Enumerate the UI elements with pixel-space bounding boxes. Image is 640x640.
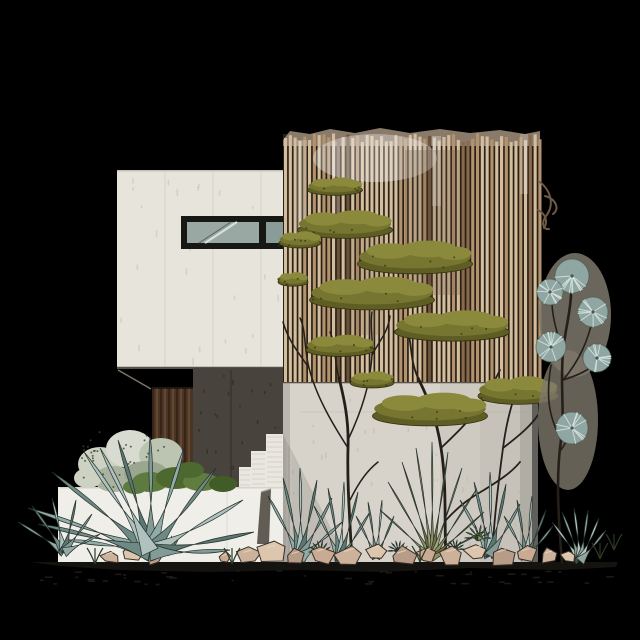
canopy-dot [459,410,461,412]
speck [349,398,351,401]
speck [508,573,516,575]
ribbon-window [181,216,287,249]
speck [435,453,437,455]
canopy-dot [314,347,316,349]
speck [436,479,438,481]
speck [312,425,314,428]
canopy-dot [366,380,368,382]
speck [186,269,188,276]
speck [252,390,254,393]
canopy-dot [320,298,322,300]
speck [462,487,464,493]
speck [75,577,78,579]
canopy-dot [284,281,286,283]
canopy-dot [363,384,365,386]
puffball [537,279,563,305]
speck [313,440,315,444]
speck [156,230,158,237]
speck [257,420,259,424]
slat [284,138,287,383]
speck [467,477,469,481]
speck [373,428,375,433]
speck [232,580,234,582]
canopy-dot [277,278,279,280]
speck [469,543,471,547]
window-mullion [259,222,266,243]
speck [75,571,83,573]
sage-dot [133,462,135,464]
speck [345,578,352,580]
sage-dot [96,450,98,452]
slat [500,136,503,383]
canopy-dot [372,255,374,257]
sage-dot [129,461,131,463]
upper-volume [117,170,283,369]
speck [123,574,126,576]
speck [415,571,417,573]
sage-dot [82,445,84,447]
canopy-dot [329,229,331,231]
speck [461,583,469,585]
canopy-dot [461,333,463,335]
speck [470,571,472,573]
canopy-bump [452,398,487,412]
canopy-dot [313,231,315,233]
speck [264,274,266,279]
puff-center [595,356,598,359]
canopy-dot [385,384,387,386]
speck [232,380,234,385]
canopy-dot [391,378,393,380]
canopy-dot [471,327,473,329]
speck [270,383,272,386]
speck [447,471,449,473]
sage-dot [84,460,86,462]
slat [289,135,292,383]
slat [481,136,484,383]
slat-highlight [520,134,528,194]
speck [88,580,94,582]
speck [242,441,244,444]
canopy-dot [397,300,399,302]
speck [325,452,327,458]
puff-center [549,345,552,348]
sage-dot [92,460,94,462]
speck [277,570,282,572]
sage-dot [99,431,101,433]
puffball [583,344,611,372]
canopy-dot [353,344,355,346]
canopy-dot [286,283,288,285]
sage-dot [90,451,92,453]
puff-center [591,310,594,313]
speck [206,449,208,454]
canopy-dot [297,278,299,280]
speck [138,345,140,351]
canopy-dot [365,350,367,352]
speck [132,178,134,184]
canopy-dot [305,227,307,229]
puff-center [570,426,573,429]
sage-dot [146,456,148,458]
canopy-dot [485,328,487,330]
canopy-dot [429,260,431,262]
canopy-dot [532,395,534,397]
canopy-dot [363,380,365,382]
canopy-bump [396,282,434,296]
speck [124,577,126,579]
speck [436,575,443,577]
speck [232,466,234,470]
canopy-dot [312,299,314,301]
speck [538,582,542,584]
speck [103,580,108,582]
puffball [536,332,566,362]
canopy-bump [345,180,362,187]
speck [177,189,179,196]
canopy-dot [420,326,422,328]
sage-dot [87,446,89,448]
sage-dot [112,486,114,488]
slat [486,137,489,384]
canopy-dot [354,188,356,190]
speck [203,389,205,392]
speck [155,584,159,586]
sage-dot [130,446,132,448]
slat [510,142,513,383]
speck [521,574,527,576]
speck [234,295,236,299]
speck [87,579,94,581]
canopy-bump [353,338,373,347]
speck [228,391,230,395]
canopy-dot [480,397,482,399]
speck [134,581,141,583]
speck [371,482,373,486]
puffball [578,297,608,327]
speck [606,576,614,578]
canopy-dot [360,190,362,192]
sage-dot [157,450,159,452]
speck [558,571,561,573]
sage-dot [123,447,125,449]
speck [239,405,241,407]
speck [357,448,359,451]
canopy-dot [300,240,302,242]
speck [169,577,177,579]
speck [252,206,254,209]
canopy-dot [505,335,507,337]
speck [380,571,382,573]
speck [223,375,225,377]
canopy-dot [294,239,296,241]
speck [198,429,200,432]
speck [199,346,201,352]
canopy-dot [304,240,306,242]
canopy-dot [442,266,444,268]
speck [192,358,194,365]
architectural-illustration [0,0,640,640]
canopy-dot [323,188,325,190]
canopy-dot [288,244,290,246]
speck [408,428,410,433]
canopy-dot [356,190,358,192]
speck [277,295,279,302]
speck [236,570,240,572]
speck [370,582,372,584]
slat [505,137,508,383]
canopy-dot [333,231,335,233]
canopy-dot [465,417,467,419]
sage-dot [163,446,165,448]
speck [141,205,143,208]
sage-dot [83,449,85,451]
slat [495,142,498,383]
puffball [556,412,588,444]
speck [514,522,516,526]
canopy-dot [436,411,438,413]
puff-center [570,274,573,277]
slat [514,141,517,383]
speck [546,571,552,573]
speck [504,583,511,585]
canopy-dot [370,346,372,348]
canopy-dot [278,244,280,246]
sage-dot [144,439,146,441]
canopy-dot [436,418,438,420]
speck [385,572,392,574]
slat [490,140,493,383]
canopy-bump [308,234,321,241]
sage-dot [93,450,95,452]
speck [144,583,147,585]
speck [264,391,266,394]
speck [215,450,217,453]
canopy-dot [515,393,517,395]
sage-dot [92,457,94,459]
speck [40,580,44,582]
speck [303,575,306,577]
speck [495,463,497,465]
canopy-dot [385,293,387,295]
speck [219,190,221,195]
sage-dot [81,457,83,459]
speck [136,265,138,270]
speck [53,583,56,585]
sage-dot [146,435,148,437]
speck [533,577,540,579]
sage-dot [92,455,94,457]
speck [161,572,166,574]
speck [225,339,227,343]
speck [321,454,323,459]
puff-center [548,290,551,293]
canopy-dot [340,297,342,299]
speck [217,415,219,419]
upper-wall [117,170,283,369]
speck [451,583,456,585]
speck [115,574,121,576]
slat [529,135,532,383]
canopy-dot [453,256,455,258]
speck [365,430,367,434]
speck [585,582,590,584]
slat [476,133,479,383]
slat [471,139,474,383]
speck [45,576,53,578]
speck [132,187,134,191]
canopy-dot [384,265,386,267]
canopy-dot [339,350,341,352]
sage-dot [119,474,121,476]
speck [120,318,122,323]
canopy-bump [299,275,308,281]
speck [214,413,216,415]
canopy-bump [363,215,392,226]
canopy-dot [351,229,353,231]
shrub-blob [209,476,237,492]
speck [245,348,247,354]
canopy-dot [411,416,413,418]
speck [518,491,520,494]
sage-dot [90,439,92,441]
speck [168,180,170,186]
speck [499,581,504,583]
sage-dot [161,436,163,438]
speck [275,427,277,429]
speck [200,411,202,414]
canopy-dot [358,186,360,188]
sage-dot [125,444,127,446]
speck [465,574,472,576]
canopy-bump [474,316,509,328]
speck [547,581,554,583]
wall-shade [520,383,532,563]
speck [488,576,491,578]
sage-dot [83,477,85,479]
speck [252,334,254,338]
speck [197,186,199,191]
